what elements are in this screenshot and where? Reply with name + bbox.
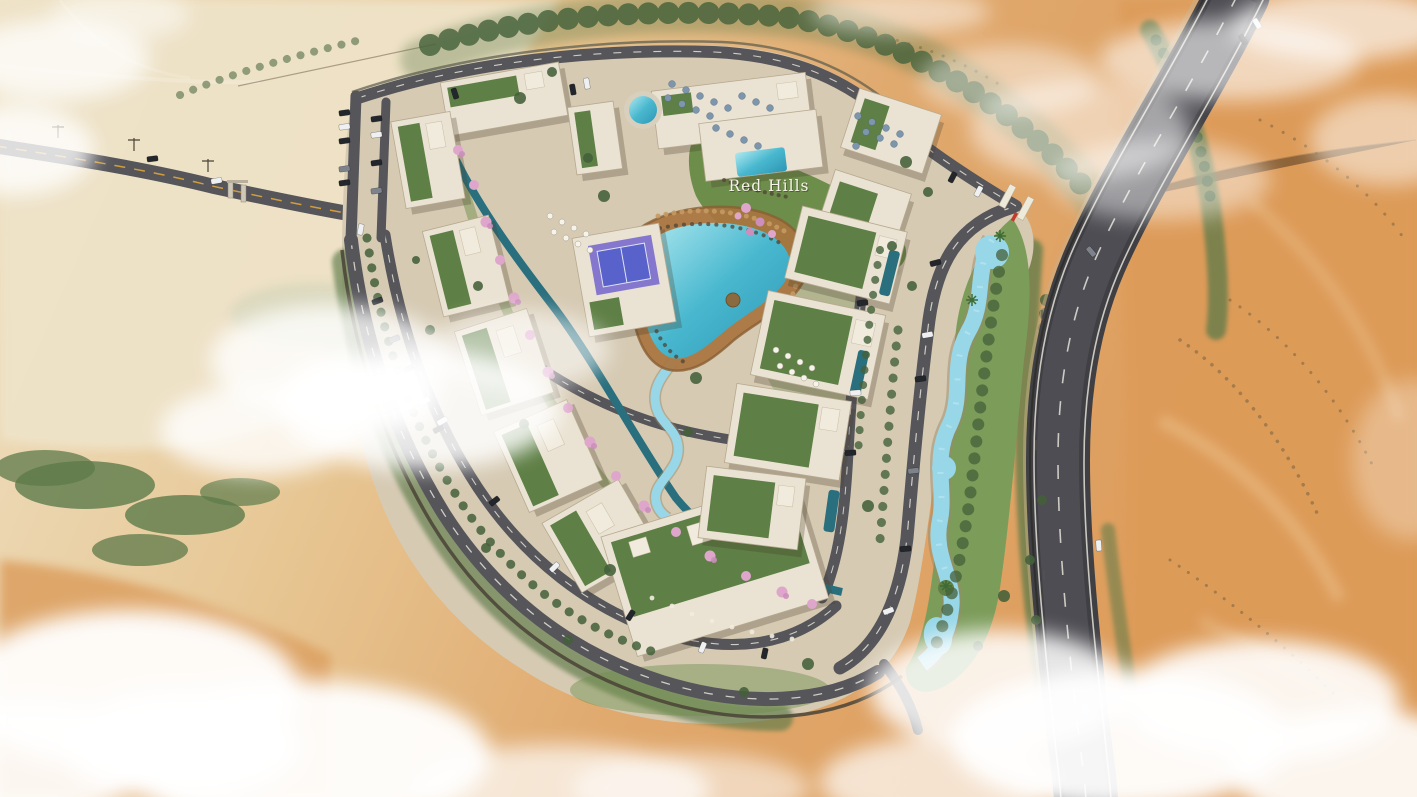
round-spa-pool bbox=[629, 96, 657, 124]
pool-palapa bbox=[726, 293, 740, 307]
aerial-resort-render: Red Hills Red Hills bbox=[0, 0, 1417, 797]
hotel-west-block bbox=[567, 100, 628, 181]
lazy-river-bulge bbox=[932, 456, 956, 480]
courtyard-building bbox=[697, 466, 811, 557]
render-canvas: Red Hills Red Hills bbox=[0, 0, 1417, 797]
resort-logo: Red Hills bbox=[728, 177, 809, 195]
parking-aisle-2 bbox=[381, 102, 386, 238]
parking-aisle-1 bbox=[351, 96, 356, 240]
